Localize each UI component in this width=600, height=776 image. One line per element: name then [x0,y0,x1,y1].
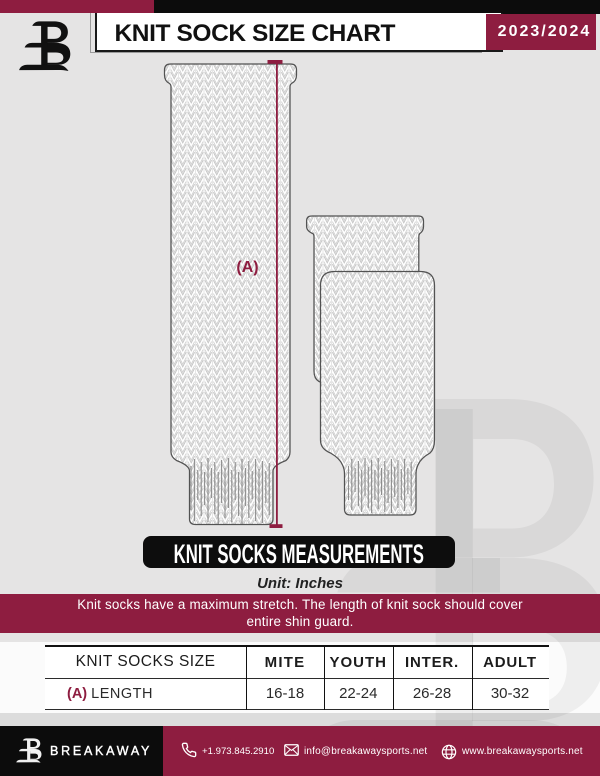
svg-text:(A): (A) [236,259,258,276]
